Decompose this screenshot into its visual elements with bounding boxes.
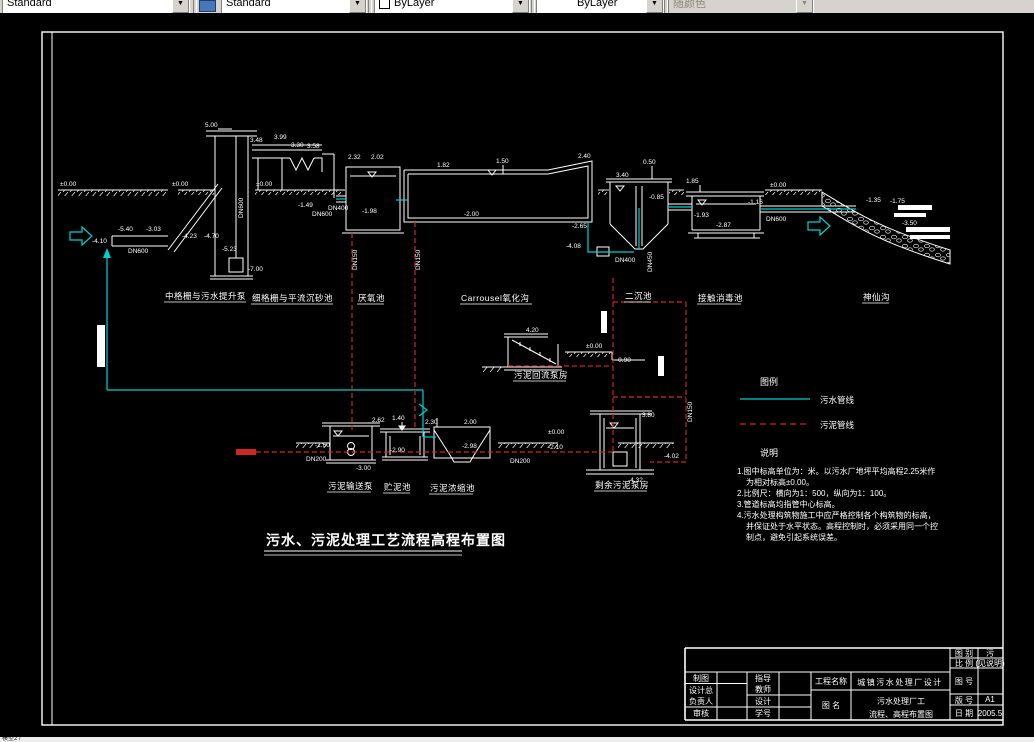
pipe-size-label: DN200 — [306, 456, 327, 463]
structure-sludge-thickener — [434, 418, 490, 462]
elevation-label: 3.48 — [250, 137, 263, 144]
label-coarse-screen: 中格栅与污水提升泵 — [165, 291, 246, 301]
elevation-label: 2.62 — [372, 417, 385, 424]
drawing-canvas[interactable]: 中格栅与污水提升泵 细格栅与平流沉砂池 厌氧池 Carrousel氧化沟 二沉池… — [0, 13, 1034, 737]
elevation-label: -4.02 — [664, 453, 679, 460]
titleblock-project-label: 工程名称 — [815, 676, 847, 686]
toolbar-separator — [193, 0, 197, 13]
structure-excess-sludge-pump-house — [586, 411, 654, 474]
elevation-label: -4.23 — [182, 233, 197, 240]
label-sludge-return-pump-house: 污泥回流泵房 — [514, 370, 568, 380]
elevation-label: 2.00 — [464, 419, 477, 426]
label-sludge-thickener: 污泥浓缩池 — [430, 483, 475, 493]
elevation-label: -7.00 — [248, 266, 263, 273]
color-combo-value: ByLayer — [390, 0, 512, 9]
titleblock-drawing-name-line1: 污水处理厂工 — [877, 696, 925, 706]
label-outfall-ditch: 神仙沟 — [863, 292, 890, 302]
titleblock-project-value: 城镇污水处理厂设计 — [857, 677, 943, 687]
titleblock-chief-label-2: 负责人 — [689, 696, 713, 706]
titleblock-studentid-label: 学号 — [755, 708, 771, 718]
elevation-label: ±0.00 — [770, 182, 787, 189]
linetype-combo-value: ByLayer — [537, 0, 646, 9]
elevation-label: -1.35 — [866, 197, 881, 204]
pipe-size-label: DN150 — [352, 249, 359, 270]
titleblock-version-value: A1 — [985, 695, 995, 704]
note-line: 制点，避免引起系统误差。 — [746, 532, 842, 542]
elevation-label: -1.98 — [362, 208, 377, 215]
chevron-down-icon[interactable]: ▼ — [646, 0, 663, 13]
label-fine-screen: 细格栅与平流沉砂池 — [252, 293, 333, 303]
elevation-label: 3.99 — [274, 134, 287, 141]
titleblock-review-label: 审核 — [693, 708, 709, 718]
titleblock-scale-label: 比 例 — [955, 658, 973, 668]
elevation-label: 4.20 — [526, 327, 539, 334]
pipe-size-label: DN600 — [312, 211, 333, 218]
pipe-size-label: DN600 — [766, 216, 787, 223]
elevation-label: 3.30 — [291, 142, 304, 149]
note-line: 并保证处于水平状态。高程控制时，必须采用同一个控 — [746, 521, 938, 531]
titleblock-drawing-name-line2: 流程、高程布置图 — [869, 709, 933, 719]
outfall-flow-arrow-icon — [808, 217, 830, 235]
titleblock-version-label: 版 号 — [955, 695, 973, 705]
structure-coarse-screen-pump-station — [112, 129, 257, 279]
color-swatch-icon — [379, 0, 390, 9]
titleblock-date-value: 2005.5 — [978, 709, 1003, 718]
elevation-label: 1.50 — [496, 158, 509, 165]
chevron-down-icon[interactable]: ▼ — [512, 0, 529, 13]
legend: 图例 污水管线 污泥管线 — [740, 376, 855, 430]
titleblock-scale-value: (见说明) — [975, 658, 1005, 668]
note-line: 1.图中标高单位为：米。以污水厂地坪平均高程2.25米作 — [737, 466, 935, 476]
elevation-label: -4.10 — [92, 238, 107, 245]
text-style-combo[interactable]: Standard ▼ — [221, 0, 367, 14]
elevation-label: 2.02 — [371, 154, 384, 161]
cad-application-window: { "toolbar": { "combos": [ {"value": "St… — [0, 0, 1034, 742]
elevation-label: 1.40 — [392, 415, 405, 422]
label-oxidation-ditch: Carrousel氧化沟 — [461, 293, 529, 303]
elevation-label: -1.75 — [890, 198, 905, 205]
elevation-label: -3.03 — [146, 226, 161, 233]
linetype-combo[interactable]: ByLayer ▼ — [536, 0, 664, 14]
status-text: 模型2 / — [2, 737, 21, 742]
elevation-label: -2.00 — [464, 211, 479, 218]
legend-title: 图例 — [760, 376, 778, 387]
structure-sludge-transfer-pump — [322, 423, 380, 463]
properties-toolbar: Standard ▼ Standard ▼ ByLayer ▼ ByLayer … — [0, 0, 1034, 14]
elevation-label: 2.30 — [425, 419, 438, 426]
elevation-label: -2.98 — [462, 443, 477, 450]
elevation-label: -5.23 — [222, 246, 237, 253]
chevron-down-icon[interactable]: ▼ — [172, 0, 189, 13]
pipe-size-label: DN200 — [510, 458, 531, 465]
pipe-size-label: DN400 — [615, 257, 636, 264]
elevation-label: ±0.00 — [586, 343, 603, 350]
pipe-size-label: DN450 — [647, 251, 654, 272]
elevation-label: 3.40 — [616, 172, 629, 179]
pipe-size-label: DN600 — [238, 197, 245, 218]
elevation-label: 3.58 — [307, 143, 320, 150]
color-combo[interactable]: ByLayer ▼ — [374, 0, 530, 14]
structure-oxidation-ditch — [404, 161, 592, 222]
elevation-label: 0.50 — [643, 159, 656, 166]
text-style-icon[interactable] — [199, 0, 216, 12]
elevation-label: -2.65 — [572, 223, 587, 230]
titleblock-category-value: 污 — [986, 648, 994, 658]
style-combo[interactable]: Standard ▼ — [2, 0, 190, 14]
note-line: 4.污水处理构筑物施工中应严格控制各个构筑物的标高， — [737, 510, 936, 520]
label-secondary-clarifier: 二沉池 — [625, 291, 652, 301]
note-line: 3.管道标高均指管中心标高。 — [737, 499, 840, 509]
titleblock-drawing-name-label: 图 名 — [822, 700, 840, 710]
elevation-label: -5.40 — [118, 226, 133, 233]
titleblock-chief-label-1: 设计总 — [689, 685, 713, 695]
elevation-label: -4.70 — [204, 233, 219, 240]
elevation-label: -2.90 — [390, 447, 405, 454]
notes-title: 说明 — [760, 447, 778, 458]
elevation-label: -1.93 — [694, 212, 709, 219]
elevation-label: -3.00 — [356, 465, 371, 472]
pipe-size-label: DN150 — [687, 401, 694, 422]
elevation-label: ±0.00 — [172, 181, 189, 188]
elevation-labels: 5.00 ±0.00 ±0.00 ±0.00 3.48 3.99 3.30 3.… — [60, 122, 917, 484]
structure-sludge-return-pump-house — [504, 334, 562, 370]
elevation-label: 1.85 — [686, 178, 699, 185]
titleblock-date-label: 日 期 — [955, 709, 973, 718]
titleblock-advisor-label-1: 指导 — [755, 673, 771, 683]
elevation-label: -4.08 — [566, 243, 581, 250]
elevation-label: -1.60 — [315, 442, 330, 449]
text-style-combo-value: Standard — [222, 0, 349, 9]
titleblock-draw-label: 制图 — [693, 673, 709, 683]
structure-secondary-clarifier — [597, 166, 672, 256]
legend-sewage-label: 污水管线 — [820, 395, 855, 405]
pipe-size-label: DN600 — [128, 248, 149, 255]
titleblock-category-label: 图 别 — [955, 649, 973, 658]
elevation-label: -0.90 — [616, 357, 631, 364]
elevation-label: 5.00 — [205, 122, 218, 129]
titleblock-advisor-label-2: 教师 — [755, 684, 771, 694]
note-line: 为相对标高±0.00。 — [746, 477, 814, 487]
elevation-label: 2.32 — [348, 154, 361, 161]
style-combo-value: Standard — [3, 0, 172, 9]
main-title: 污水、污泥处理工艺流程高程布置图 — [264, 532, 506, 555]
structure-anaerobic-tank — [336, 167, 404, 233]
elevation-label: -4.32 — [628, 477, 643, 484]
elevation-label: -2.87 — [716, 222, 731, 229]
note-line: 2.比例尺：横向为1：500，纵向为1：100。 — [737, 488, 891, 498]
elevation-label: -1.16 — [748, 199, 763, 206]
toolbar-separator — [368, 0, 372, 13]
chevron-down-icon[interactable]: ▼ — [349, 0, 366, 13]
status-bar: 模型2 / — [0, 737, 1034, 742]
inlet-flow-arrow-icon — [70, 227, 92, 245]
elevation-label: -3.50 — [902, 220, 917, 227]
elevation-label: -2.10 — [548, 444, 563, 451]
notes: 说明 1.图中标高单位为：米。以污水厂地坪平均高程2.25米作 为相对标高±0.… — [737, 447, 938, 542]
elevation-label: 1.82 — [437, 162, 450, 169]
ground-lines — [58, 190, 822, 448]
page-title: 污水、污泥处理工艺流程高程布置图 — [266, 532, 506, 548]
label-contact-tank: 接触消毒池 — [698, 293, 743, 303]
pipe-size-label: DN150 — [415, 249, 422, 270]
chevron-down-icon: ▼ — [796, 0, 813, 13]
elevation-label: ±0.00 — [548, 429, 565, 436]
elevation-label: -0.85 — [649, 194, 664, 201]
title-block: 制图 设计总 负责人 审核 指导 教师 设计 学号 工程名称 城镇污水处理厂设计… — [685, 648, 1005, 720]
toolbar-separator — [531, 0, 535, 13]
label-sludge-transfer-pump: 污泥输送泵 — [328, 481, 373, 491]
plotstyle-combo: 随颜色 ▼ — [668, 0, 814, 14]
titleblock-design-label: 设计 — [755, 696, 771, 706]
plotstyle-combo-value: 随颜色 — [669, 0, 796, 11]
elevation-label: -1.49 — [298, 202, 313, 209]
up-arrow-icon — [103, 248, 111, 258]
pipe-size-label: DN400 — [328, 205, 349, 212]
titleblock-number-label: 图 号 — [955, 677, 973, 686]
label-anaerobic-tank: 厌氧池 — [358, 293, 385, 303]
elevation-label: 3.80 — [642, 412, 655, 419]
label-sludge-storage-tank: 贮泥池 — [384, 482, 411, 492]
legend-sludge-label: 污泥管线 — [820, 420, 855, 430]
elevation-label: ±0.00 — [60, 181, 77, 188]
elevation-label: 2.40 — [578, 153, 591, 160]
elevation-label: ±0.00 — [256, 181, 273, 188]
